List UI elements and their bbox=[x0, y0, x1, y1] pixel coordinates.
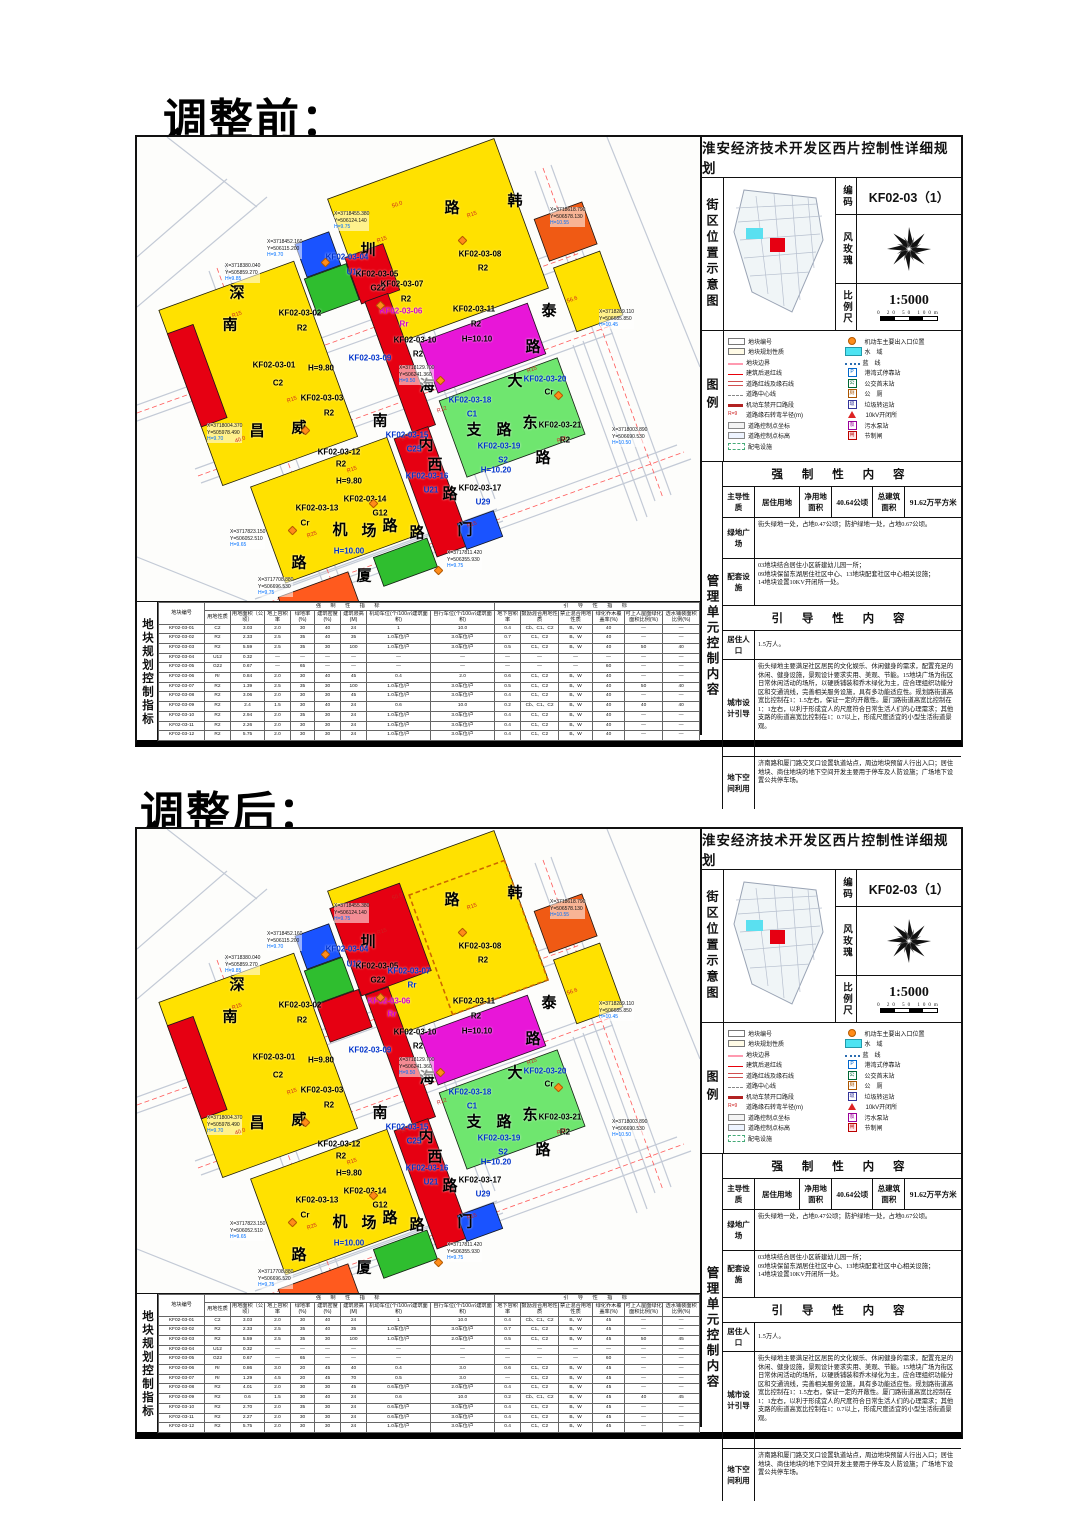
legend-item: 地块编号 bbox=[728, 1028, 843, 1039]
table-cell: C1、C2 bbox=[521, 634, 559, 644]
legend-symbol-dashbox-icon bbox=[728, 1135, 745, 1142]
table-cell: 24 bbox=[341, 1403, 367, 1413]
coordinate-callout: X=3718289.110Y=506685.850H=10.45 bbox=[599, 309, 634, 329]
legend-text: 公 厕 bbox=[865, 1081, 883, 1090]
table-cell: 45 bbox=[593, 1326, 625, 1336]
table-row: KF02-03-09R20.61.53040240.610.00.2Cb、C1、… bbox=[159, 1394, 700, 1404]
table-cell: B、W bbox=[559, 624, 593, 634]
table-cell: 45 bbox=[663, 1394, 700, 1404]
table-cell: 35 bbox=[341, 1326, 367, 1336]
legend-item: 地块规划性质 bbox=[728, 347, 843, 358]
vehicle-entrance-icon bbox=[436, 1068, 446, 1078]
table-cell: 0.4 bbox=[495, 624, 521, 634]
road-name-char: 路 bbox=[525, 1028, 540, 1049]
table-cell: 40 bbox=[593, 643, 625, 653]
table-cell: 40 bbox=[663, 682, 700, 692]
legend-column-left: 地块编号地块规划性质地块边界建筑后退红线道路红线及缘石线道路中心线机动车禁开口路… bbox=[728, 336, 843, 458]
table-cell: 30 bbox=[291, 731, 315, 741]
table-cell: 1.39 bbox=[231, 682, 265, 692]
table-cell: — bbox=[663, 1423, 700, 1433]
table-cell: C1、C2 bbox=[521, 673, 559, 683]
population-label: 居住人口 bbox=[723, 631, 755, 659]
table-cell: 40 bbox=[593, 682, 625, 692]
table-cell: Rr bbox=[205, 1374, 231, 1384]
table-cell: 2.5 bbox=[265, 1326, 291, 1336]
block-label: U21 bbox=[424, 486, 439, 495]
net-area-label: 净用地面积 bbox=[800, 1179, 832, 1209]
block-label: KF02-03-18 bbox=[449, 1088, 492, 1097]
table-cell: — bbox=[291, 653, 315, 663]
legend-item: 道路控制点坐标 bbox=[728, 1112, 843, 1123]
table-cell: 0.4 bbox=[495, 1316, 521, 1326]
underground-text: 济南路和厦门路交叉口设置轨道站点，周边地块预留人行出入口；居住地块、商住地块的地… bbox=[755, 757, 961, 809]
road-name-char: 大 bbox=[507, 1062, 522, 1083]
table-cell: 2.0 bbox=[265, 1384, 291, 1394]
block-label: KF02-03-08 bbox=[459, 942, 502, 951]
title-block-sidebar: 淮安经济技术开发区西片控制性详细规划 街区位置示意图 bbox=[700, 137, 961, 735]
table-cell: G22 bbox=[205, 663, 231, 673]
legend-item: 机动车主要出入口位置 bbox=[845, 1028, 960, 1039]
legend-symbol-thickred-icon bbox=[728, 1096, 743, 1099]
table-cell: — bbox=[625, 1403, 663, 1413]
table-cell: 30 bbox=[291, 692, 315, 702]
block-label: C25 bbox=[407, 445, 422, 454]
block-label: KF02-03-13 bbox=[296, 504, 339, 513]
table-cell: 10.0 bbox=[431, 1394, 495, 1404]
legend-item: 公公交首末站 bbox=[845, 1070, 960, 1081]
table-cell: 0.4 bbox=[495, 1403, 521, 1413]
block-label: KF02-03-21 bbox=[539, 1113, 582, 1122]
block-label: U29 bbox=[476, 498, 491, 507]
table-cell: U12 bbox=[205, 653, 231, 663]
table-cell: 10.0 bbox=[431, 702, 495, 712]
table-column-header: 透水铺装面积比例(%) bbox=[663, 610, 700, 624]
vehicle-entrance-icon bbox=[288, 526, 298, 536]
legend-item: 10kV开闭所 bbox=[845, 410, 960, 421]
table-cell: KF02-03-01 bbox=[159, 1316, 205, 1326]
table-cell: — bbox=[625, 653, 663, 663]
table-cell: 2.0 bbox=[265, 711, 291, 721]
road-name-char: 泰 bbox=[541, 992, 556, 1013]
block-label: KF02-03-20 bbox=[524, 375, 567, 384]
table-cell: 1.0车位/户 bbox=[367, 682, 431, 692]
block-label: KF02-03-04 bbox=[326, 945, 369, 954]
table-cell: 2.33 bbox=[231, 1326, 265, 1336]
block-label: H=9.80 bbox=[308, 364, 334, 373]
scale-label: 比例尺 bbox=[836, 976, 857, 1022]
table-cell: — bbox=[625, 1345, 663, 1355]
plan-code: KF02-03（1） bbox=[857, 870, 961, 906]
lead-use-label: 主导性质 bbox=[723, 1179, 755, 1209]
road-name-char: 路 bbox=[442, 483, 457, 504]
block-label: Cr bbox=[545, 1080, 554, 1089]
table-cell: KF02-03-02 bbox=[159, 634, 205, 644]
table-cell: — bbox=[559, 663, 593, 673]
dimension-label: R15 bbox=[286, 1087, 298, 1096]
legend-item: 圾垃圾转运站 bbox=[845, 399, 960, 410]
legend-symbol-codebox-icon bbox=[728, 1030, 745, 1037]
road-name-char: 东 bbox=[522, 412, 537, 433]
minimap-water bbox=[746, 228, 763, 239]
table-cell: 40 bbox=[593, 721, 625, 731]
table-cell: C1、C2 bbox=[521, 643, 559, 653]
legend-item: P港湾式停靠站 bbox=[845, 1060, 960, 1071]
table-cell: 0.7 bbox=[495, 1326, 521, 1336]
legend-text: 节制闸 bbox=[865, 431, 883, 440]
legend-symbol-sq-icon: 厕 bbox=[848, 389, 857, 398]
block-label: KF02-03-14 bbox=[344, 495, 387, 504]
legend-item: 10kV开闭所 bbox=[845, 1102, 960, 1113]
population-value: 1.5万人。 bbox=[755, 1323, 961, 1351]
table-cell: R2 bbox=[205, 1394, 231, 1404]
table-cell: KF02-03-10 bbox=[159, 1403, 205, 1413]
table-cell: 3.0车位/户 bbox=[431, 634, 495, 644]
table-cell: 60 bbox=[593, 663, 625, 673]
table-cell: 45 bbox=[593, 1423, 625, 1433]
dimension-label: R15 bbox=[466, 902, 478, 911]
table-cell: 30 bbox=[291, 624, 315, 634]
table-cell: 30 bbox=[315, 692, 341, 702]
legend-item: 泵污水泵站 bbox=[845, 420, 960, 431]
table-cell: 5.59 bbox=[231, 643, 265, 653]
block-label: H=9.80 bbox=[308, 1056, 334, 1065]
legend-text: 地块规划性质 bbox=[748, 1039, 784, 1048]
legend-text: 道路缘石转弯半径(m) bbox=[746, 410, 803, 419]
table-cell: 5.75 bbox=[231, 1423, 265, 1433]
col-block-id: 地块编号 bbox=[159, 1295, 205, 1317]
road-name-char: 昌 bbox=[249, 1112, 264, 1133]
table-cell: — bbox=[625, 711, 663, 721]
table-cell: B、W bbox=[559, 1384, 593, 1394]
scale-bar: 0 20 50 100m bbox=[877, 1003, 941, 1013]
legend-text: 机动车主要出入口位置 bbox=[865, 1029, 925, 1038]
table-column-header: 地上容积率 bbox=[265, 610, 291, 624]
table-cell: — bbox=[663, 1365, 700, 1375]
road-name-char: 路 bbox=[444, 889, 459, 910]
table-cell: 0.7 bbox=[495, 634, 521, 644]
table-cell: — bbox=[625, 1384, 663, 1394]
table-cell: — bbox=[291, 1345, 315, 1355]
table-cell: 40 bbox=[341, 1365, 367, 1375]
table-column-header: 用地面积（公顷） bbox=[231, 1302, 265, 1316]
table-row: KF02-03-01C23.032.0304024110.00.4Cb、C1、C… bbox=[159, 1316, 700, 1326]
table-cell: 0.32 bbox=[231, 1345, 265, 1355]
table-column-header: 机动车位(个/100㎡建筑面积) bbox=[367, 610, 431, 624]
table-cell: 3.0车位/户 bbox=[431, 1423, 495, 1433]
table-cell: 45 bbox=[663, 1335, 700, 1345]
table-row: KF02-03-04U120.32———————————— bbox=[159, 653, 700, 663]
table-cell: — bbox=[625, 1413, 663, 1423]
block-label: Cr bbox=[301, 519, 310, 528]
coordinate-callout: X=3718618.790Y=506578.130H=10.55 bbox=[550, 899, 585, 919]
table-cell: 30 bbox=[315, 682, 341, 692]
table-cell: 30 bbox=[291, 1413, 315, 1423]
table-cell: 24 bbox=[341, 1316, 367, 1326]
gfa-label: 总建筑面积 bbox=[873, 1179, 905, 1209]
table-cell: — bbox=[625, 1423, 663, 1433]
table-cell: 3.0车位/户 bbox=[431, 1326, 495, 1336]
table-cell: B、W bbox=[559, 1326, 593, 1336]
table-cell: B、W bbox=[559, 1394, 593, 1404]
table-cell: — bbox=[625, 1316, 663, 1326]
table-cell: 1.0车位/户 bbox=[367, 731, 431, 741]
table-cell: — bbox=[663, 624, 700, 634]
legend-item: R=9道路缘石转弯半径(m) bbox=[728, 1102, 843, 1113]
table-cell: — bbox=[367, 653, 431, 663]
coordinate-callout: X=3718455.380Y=506124.140H=9.75 bbox=[334, 903, 369, 923]
legend-symbol-redline-icon bbox=[728, 1066, 743, 1067]
vehicle-entrance-icon bbox=[458, 236, 468, 246]
legend-label: 图例 bbox=[702, 331, 724, 461]
legend-item: 建筑后退红线 bbox=[728, 1060, 843, 1071]
legend-symbol-sq-icon: 厕 bbox=[848, 1081, 857, 1090]
table-cell: — bbox=[431, 663, 495, 673]
population-value: 1.5万人。 bbox=[755, 631, 961, 659]
road-name-char: 韩 bbox=[507, 190, 522, 211]
legend-symbol-sq-icon: 圾 bbox=[848, 1092, 857, 1101]
legend-item: 地块边界 bbox=[728, 1049, 843, 1060]
block-label: KF02-03-06 bbox=[380, 307, 423, 316]
legend-text: 道路红线及缘石线 bbox=[746, 1071, 794, 1080]
table-cell: 2.94 bbox=[231, 711, 265, 721]
table-cell: 40 bbox=[315, 673, 341, 683]
dimension-label: 50.0 bbox=[391, 892, 403, 901]
legend-item: 闸节制闸 bbox=[845, 1123, 960, 1134]
table-cell: 3.06 bbox=[231, 692, 265, 702]
table-cell: — bbox=[521, 1345, 559, 1355]
table-cell: — bbox=[367, 663, 431, 673]
table-cell: 1 bbox=[367, 624, 431, 634]
underground-label: 地下空间利用 bbox=[723, 1449, 755, 1501]
table-cell: 2.0 bbox=[265, 731, 291, 741]
table-cell: 0.4 bbox=[495, 1423, 521, 1433]
block-label: G22 bbox=[370, 976, 385, 985]
table-cell: B、W bbox=[559, 731, 593, 741]
table-cell: 0.4 bbox=[367, 673, 431, 683]
table-cell: KF02-03-12 bbox=[159, 1423, 205, 1433]
table-cell: 0.5 bbox=[367, 1374, 431, 1384]
legend-item: 道路中心线 bbox=[728, 1081, 843, 1092]
table-cell: 3.0车位/户 bbox=[431, 692, 495, 702]
minimap-water bbox=[746, 920, 763, 931]
legend-item: 道路控制点坐标 bbox=[728, 420, 843, 431]
legend-symbol-rtext-icon: R=9 bbox=[728, 411, 743, 418]
legend-item: 地块规划性质 bbox=[728, 1039, 843, 1050]
table-cell: Rr bbox=[205, 1365, 231, 1375]
table-cell: 45 bbox=[593, 1403, 625, 1413]
legend-symbol-pinkline-icon bbox=[728, 363, 743, 365]
legend-text: 道路控制点坐标 bbox=[748, 421, 790, 430]
table-cell: 30 bbox=[315, 731, 341, 741]
table-cell: KF02-03-04 bbox=[159, 653, 205, 663]
table-cell: 0.6车位/户 bbox=[367, 1413, 431, 1423]
table-cell: 2.0 bbox=[265, 1423, 291, 1433]
lead-use-value: 居住用地 bbox=[755, 1179, 800, 1209]
table-cell: 2.4 bbox=[231, 702, 265, 712]
legend-item: 闸节制闸 bbox=[845, 431, 960, 442]
table-cell: — bbox=[625, 731, 663, 741]
table-cell: 40 bbox=[315, 702, 341, 712]
scale-value: 1:5000 bbox=[889, 293, 929, 309]
coordinate-callout: X=3718380.040Y=505859.270H=9.85 bbox=[225, 263, 260, 283]
vehicle-entrance-icon bbox=[554, 391, 564, 401]
block-label: KF02-03-09 bbox=[349, 1046, 392, 1055]
legend-text: 道路中心线 bbox=[746, 1081, 776, 1090]
table-cell: — bbox=[521, 1355, 559, 1365]
table-cell: Cb、C1、C2 bbox=[521, 1316, 559, 1326]
scale-value: 1:5000 bbox=[889, 985, 929, 1001]
minimap-site-marker bbox=[770, 238, 785, 252]
table-cell: 0.4 bbox=[495, 731, 521, 741]
table-cell: 0.67 bbox=[231, 1355, 265, 1365]
table-cell: KF02-03-12 bbox=[159, 731, 205, 741]
table-cell: 30 bbox=[315, 1423, 341, 1433]
road-name-char: 路 bbox=[409, 1214, 424, 1235]
table-cell: 1.0车位/户 bbox=[367, 711, 431, 721]
block-label: R2 bbox=[413, 1042, 423, 1051]
gfa-value: 91.62万平方米 bbox=[905, 487, 961, 517]
legend-symbol-orangedot-icon bbox=[848, 337, 856, 345]
legend-item: P港湾式停靠站 bbox=[845, 368, 960, 379]
coordinate-callout: X=3718129.700Y=506241.360H=9.50 bbox=[399, 365, 434, 385]
legend-symbol-dotline-icon bbox=[845, 1055, 860, 1057]
block-label: KF02-03-11 bbox=[453, 305, 495, 314]
table-cell: R2 bbox=[205, 1326, 231, 1336]
dimension-label: 56.6 bbox=[566, 295, 578, 304]
table-cell: 3.03 bbox=[231, 624, 265, 634]
table-cell: 30 bbox=[291, 721, 315, 731]
table-cell: 40 bbox=[625, 1394, 663, 1404]
table-cell: 2.0 bbox=[265, 1316, 291, 1326]
table-cell: — bbox=[663, 1326, 700, 1336]
legend-text: 污水泵站 bbox=[865, 1113, 889, 1122]
table-cell: B、W bbox=[559, 1316, 593, 1326]
table-cell: 40 bbox=[625, 702, 663, 712]
facilities-text: 03地块结合居住小区新建幼儿园一所； 09地块保留东湖居住社区中心、13地块配套… bbox=[755, 559, 961, 605]
table-cell: 3.0车位/户 bbox=[431, 731, 495, 741]
table-cell: 3.0车位/户 bbox=[431, 711, 495, 721]
table-cell: KF02-03-02 bbox=[159, 1326, 205, 1336]
table-cell: 0.2 bbox=[495, 702, 521, 712]
block-label: C1 bbox=[467, 1102, 477, 1111]
management-unit-label: 管理单元控制内容 bbox=[702, 1154, 723, 1501]
legend-text: 地块规划性质 bbox=[748, 347, 784, 356]
legend-text: 垃圾转运站 bbox=[865, 1092, 895, 1101]
coordinate-callout: X=3718003.890Y=506690.530H=10.50 bbox=[612, 1119, 647, 1139]
legend-text: 地块编号 bbox=[748, 337, 772, 346]
table-cell: 0.4 bbox=[495, 692, 521, 702]
table-cell: B、W bbox=[559, 643, 593, 653]
table-cell: 45 bbox=[593, 1413, 625, 1423]
block-label: R2 bbox=[478, 264, 488, 273]
legend-symbol-thickred-icon bbox=[728, 404, 743, 407]
legend-symbol-sq-icon: 圾 bbox=[848, 400, 857, 409]
dimension-label: R15 bbox=[346, 1157, 358, 1166]
table-cell: 30 bbox=[291, 702, 315, 712]
table-row: KF02-03-10R22.702.03530240.6车位/户3.0车位/户0… bbox=[159, 1403, 700, 1413]
net-area-value: 40.64公顷 bbox=[832, 487, 873, 517]
table-column-header: 禁止混合用地性质 bbox=[559, 610, 593, 624]
table-cell: — bbox=[663, 1384, 700, 1394]
dimension-label: R25 bbox=[306, 1222, 318, 1231]
table-cell: — bbox=[663, 1316, 700, 1326]
table-column-header: 地上容积率 bbox=[265, 1302, 291, 1316]
location-minimap bbox=[724, 178, 836, 330]
table-cell: KF02-03-06 bbox=[159, 1365, 205, 1375]
legend-text: 10kV开闭所 bbox=[866, 410, 898, 419]
table-cell: 40 bbox=[315, 624, 341, 634]
legend-item: 水 域 bbox=[845, 1039, 960, 1050]
block-label: H=10.00 bbox=[334, 1239, 364, 1248]
coordinate-callout: X=3717708.880Y=506696.520H=9.75 bbox=[258, 1269, 293, 1289]
table-row: KF02-03-11R22.272.03030240.6车位/户3.0车位/户0… bbox=[159, 1413, 700, 1423]
table-cell: — bbox=[265, 663, 291, 673]
table-cell: B、W bbox=[559, 1413, 593, 1423]
table-cell: — bbox=[625, 624, 663, 634]
table-cell: 2.0 bbox=[265, 1403, 291, 1413]
table-row: KF02-03-07R21.392.535301001.0车位/户3.0车位/户… bbox=[159, 682, 700, 692]
table-column-header: 绿化乔木覆盖率(%) bbox=[593, 1302, 625, 1316]
table-cell: C1、C2 bbox=[521, 1365, 559, 1375]
table-cell: — bbox=[521, 653, 559, 663]
table-cell: — bbox=[367, 1345, 431, 1355]
table-cell: 24 bbox=[341, 721, 367, 731]
vehicle-entrance-icon bbox=[458, 928, 468, 938]
table-cell: 0.86 bbox=[231, 1365, 265, 1375]
table-cell: 0.2 bbox=[495, 1394, 521, 1404]
block-label: R2 bbox=[413, 350, 423, 359]
coordinate-callout: X=3718452.160Y=506115.200H=9.70 bbox=[267, 239, 302, 259]
legend-symbol-sq-icon: 闸 bbox=[848, 431, 857, 440]
table-cell: 45 bbox=[341, 673, 367, 683]
road-name-char: 路 bbox=[409, 522, 424, 543]
legend-symbol-usebox-icon bbox=[728, 348, 745, 355]
table-cell: B、W bbox=[559, 721, 593, 731]
table-cell: 45 bbox=[593, 1374, 625, 1384]
legend-item: 建筑后退红线 bbox=[728, 368, 843, 379]
col-block-id: 地块编号 bbox=[159, 603, 205, 625]
table-cell: 3.0车位/户 bbox=[431, 682, 495, 692]
dimension-label: R15 bbox=[346, 465, 358, 474]
table-cell: 50 bbox=[625, 643, 663, 653]
table-cell: — bbox=[593, 653, 625, 663]
legend-symbol-dashbox-icon bbox=[728, 443, 745, 450]
block-label: KF02-03-08 bbox=[459, 250, 502, 259]
road-name-char: 厦 bbox=[356, 565, 371, 586]
table-cell: B、W bbox=[559, 673, 593, 683]
block-label: H=10.10 bbox=[462, 1027, 492, 1036]
lead-use-label: 主导性质 bbox=[723, 487, 755, 517]
table-cell: B、W bbox=[559, 1365, 593, 1375]
table-cell: — bbox=[663, 673, 700, 683]
table-cell: C1、C2 bbox=[521, 1413, 559, 1423]
road-name-char: 路 bbox=[496, 419, 511, 440]
table-row: KF02-03-05G220.67—65———————60—— bbox=[159, 663, 700, 673]
block-label: S2 bbox=[498, 456, 508, 465]
table-column-header: 建筑密度(%) bbox=[315, 1302, 341, 1316]
road-name-char: 路 bbox=[496, 1111, 511, 1132]
table-cell: C1、C2 bbox=[521, 1374, 559, 1384]
block-label: KF02-03-21 bbox=[539, 421, 582, 430]
table-cell: — bbox=[431, 1355, 495, 1365]
table-cell: — bbox=[663, 663, 700, 673]
legend-text: 道路控制点坐标 bbox=[748, 1113, 790, 1122]
table-cell: 35 bbox=[291, 1335, 315, 1345]
table-cell: 45 bbox=[593, 1394, 625, 1404]
block-label: KF02-03-12 bbox=[318, 448, 361, 457]
table-cell: — bbox=[625, 1374, 663, 1384]
control-indicator-table: 地块规划控制指标 地块编号 强 制 性 指 标 引 导 性 指 标 用地性质用地… bbox=[137, 1293, 700, 1434]
